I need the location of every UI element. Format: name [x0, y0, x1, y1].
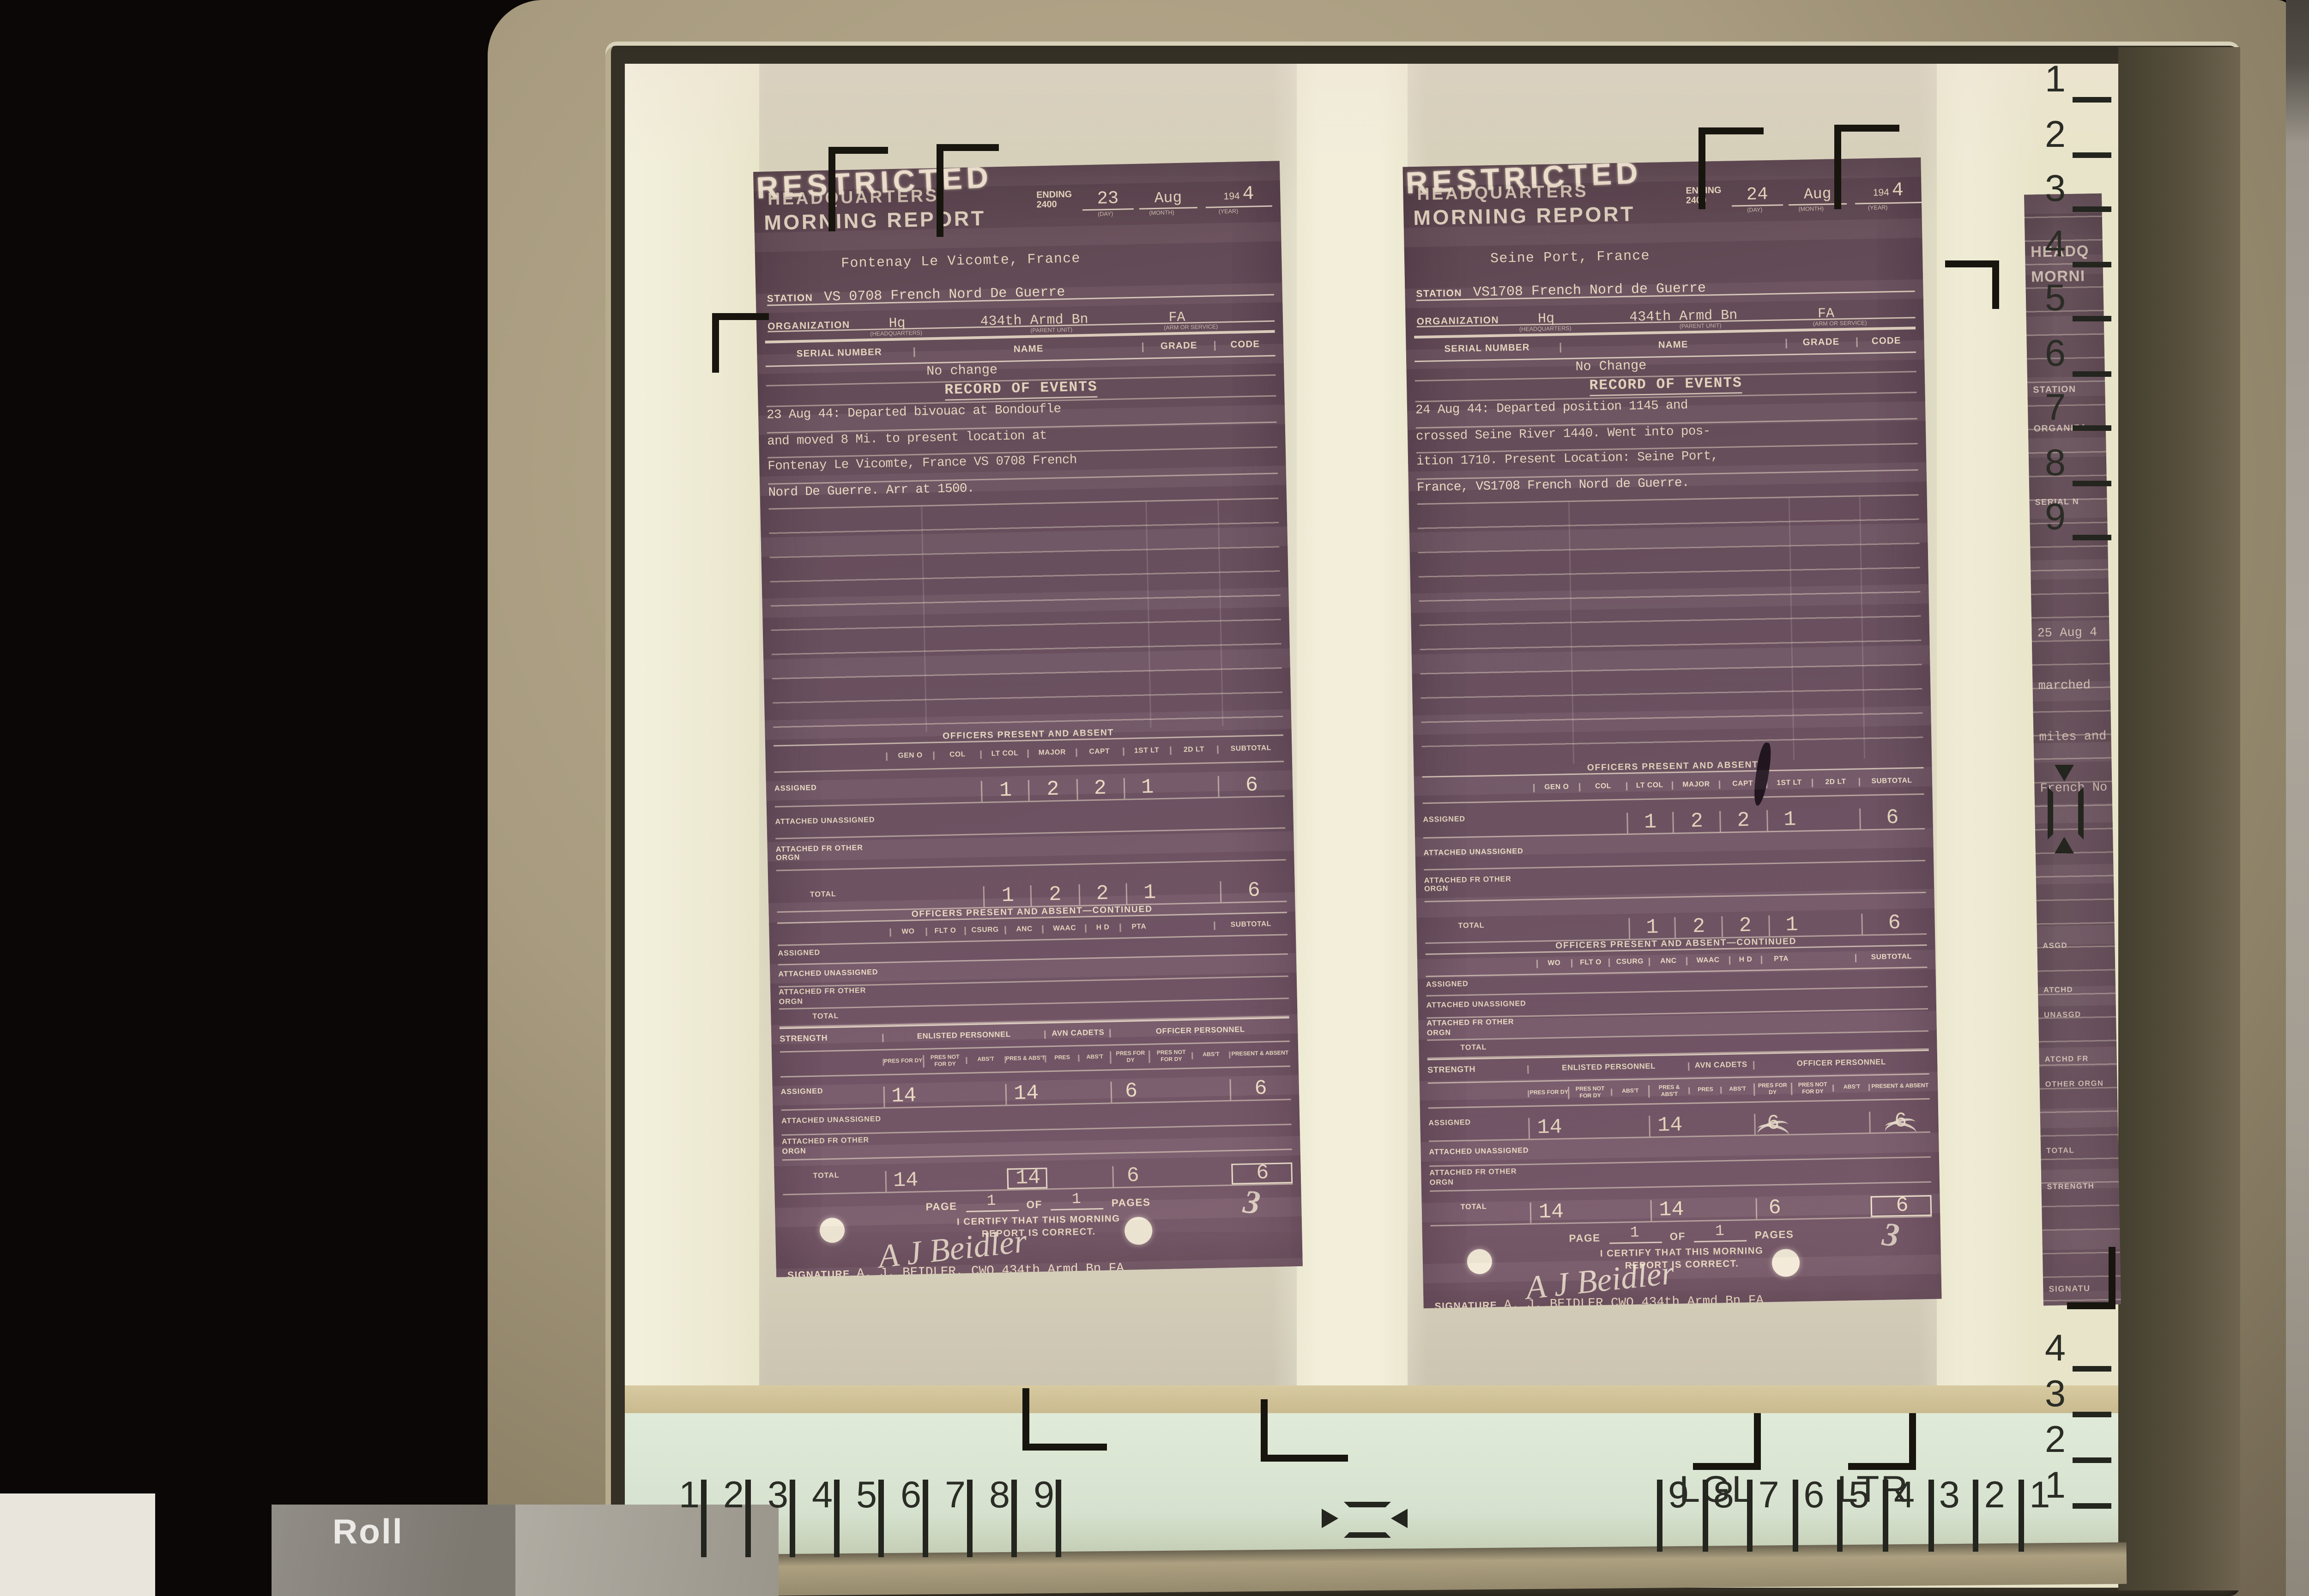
officers-column-header: CAPT	[1075, 748, 1123, 757]
strength-value-cell	[1079, 1127, 1112, 1128]
ruled-lines	[768, 499, 1283, 736]
officers-value-cell	[1581, 865, 1627, 866]
bottom-ruler-number: 5	[856, 1474, 877, 1517]
crop-mark	[828, 147, 888, 231]
bottom-ruler-number: 4	[1894, 1474, 1915, 1517]
strength-group-label: ENLISTED PERSONNEL	[882, 1030, 1045, 1042]
strength-value-cell	[1611, 1137, 1649, 1137]
strength-value-cell	[1231, 1149, 1292, 1150]
officers-cont-value-cell	[1005, 958, 1043, 959]
strength-value-cell	[1871, 1181, 1931, 1182]
bottom-ruler-number: 9	[1668, 1474, 1689, 1517]
strength-column-header: ABS'T	[1833, 1084, 1869, 1092]
ruled-lines	[1417, 496, 1923, 767]
officers-value-cell	[1767, 894, 1814, 895]
strength-group-label: AVN CADETS	[1045, 1029, 1110, 1039]
row-label: ATTACHED FR OTHER ORGN	[1427, 1018, 1537, 1038]
strength-value-cell	[1793, 1183, 1835, 1184]
ruler-tick	[701, 1480, 707, 1557]
strength-value: 6	[1125, 1080, 1138, 1104]
officers-cont-value-cell	[1007, 1021, 1045, 1022]
officers-cont-value-cell	[1688, 1034, 1730, 1035]
strength-value-cell	[1792, 1158, 1834, 1159]
officers-value-cell	[983, 864, 1030, 865]
officers-cont-column-header: WO	[889, 927, 925, 936]
partial-doc-line: STRENGTH	[2047, 1183, 2094, 1192]
officers-cont-column-header: ANC	[1005, 925, 1043, 934]
of-label: OF	[1026, 1198, 1042, 1211]
strength-value-cell: 14	[1650, 1199, 1691, 1221]
strength-value-cell: 6	[1229, 1078, 1291, 1100]
ruler-tick	[1657, 1480, 1662, 1552]
officers-cont-value-cell	[1650, 1013, 1687, 1013]
officers-cont-value-cell	[966, 1004, 1006, 1004]
partial-doc-line: marched	[2038, 678, 2091, 693]
strength-column-header: ABS'T	[966, 1057, 1004, 1064]
strength-value-cell	[1723, 1185, 1754, 1185]
strength-value: 14	[891, 1084, 917, 1108]
officers-cont-value-cell	[890, 961, 926, 962]
row-label: ATTACHED FR OTHER ORGN	[779, 987, 891, 1007]
side-ruler-number: 5	[2045, 277, 2066, 320]
row-label: ATTACHED FR OTHER ORGN	[782, 1137, 884, 1156]
officers-value-cell	[1580, 834, 1627, 834]
officers-cont-value-cell	[1119, 956, 1158, 957]
officers-value-cell: 1	[981, 780, 1028, 802]
officers-cont-value-cell	[1537, 1015, 1572, 1015]
strength-value-cell	[1193, 1100, 1229, 1101]
pages-total: 1	[1693, 1223, 1747, 1242]
officers-cont-value-cell	[1800, 987, 1855, 988]
strength-column-header: PRES & ABS'T	[1649, 1084, 1689, 1098]
column-header: CODE	[1214, 339, 1275, 350]
side-ruler-number: 3	[2045, 168, 2066, 211]
strength-column-header: ABS'T	[1078, 1054, 1111, 1062]
row-label: TOTAL	[1430, 1202, 1530, 1213]
side-ruler-number: 4	[2045, 223, 2066, 266]
corner-cell	[1428, 1082, 1529, 1107]
officers-cont-value-cell	[1801, 1050, 1856, 1051]
row-label: ATTACHED UNASSIGNED	[781, 1116, 883, 1127]
officers-value-cell: 1	[1628, 917, 1675, 939]
strength-column-header: ABS'T	[1610, 1088, 1649, 1095]
officers-cont-value-cell	[966, 1022, 1007, 1022]
row-label: TOTAL	[1427, 1043, 1537, 1054]
location-line: Seine Port, France	[1490, 250, 1650, 268]
strength-value-cell	[1046, 1103, 1079, 1104]
officers-cont-value-cell	[1762, 988, 1800, 989]
strength-value-cell: 14	[1005, 1083, 1046, 1105]
row-label: ATTACHED FR OTHER ORGN	[1424, 875, 1535, 895]
officers-value-cell	[1674, 864, 1720, 864]
strength-value-cell	[1570, 1187, 1612, 1188]
strength-column-header: PRES NOT FOR DY	[1149, 1049, 1192, 1064]
officers-value-cell	[1029, 832, 1076, 833]
strength-value-cell	[925, 1190, 968, 1191]
strength-value-cell	[1112, 1152, 1151, 1153]
ruler-tick	[1838, 1480, 1843, 1552]
row-label: ASSIGNED	[1428, 1118, 1529, 1129]
officers-cont-column-header: FLT O	[925, 926, 964, 936]
partial-doc-line: OTHER ORGN	[2045, 1080, 2104, 1089]
ending-label-line1: ENDING	[1036, 190, 1082, 201]
column-header: SERIAL NUMBER	[765, 347, 913, 360]
row-label: ATTACHED FR OTHER ORGN	[1429, 1168, 1530, 1187]
officers-cont-column-header	[1158, 925, 1214, 926]
officers-column-header: GEN O	[886, 751, 933, 761]
strength-value-cell	[1835, 1182, 1871, 1183]
officers-cont-value-cell	[892, 1023, 927, 1024]
strength-value-cell	[1006, 1129, 1046, 1130]
officers-value-cell: 6	[1859, 807, 1925, 829]
officers-cont-value-cell	[1610, 1035, 1650, 1036]
officers-cont-value-cell	[1536, 992, 1572, 993]
officers-cont-value-cell	[1043, 957, 1086, 958]
row-label: ATTACHED UNASSIGNED	[1424, 847, 1534, 858]
strength-value-cell	[1230, 1124, 1292, 1125]
officers-value-cell: 2	[1674, 916, 1722, 938]
officers-column-header: SUBTOTAL	[1217, 744, 1284, 754]
ruler-tick	[2073, 97, 2111, 103]
report-body: SERIAL NUMBERNAMEGRADECODENo changeRECOR…	[757, 330, 1303, 1277]
strength-value-cell	[1193, 1125, 1230, 1126]
strength-value-cell: 6	[1111, 1081, 1150, 1103]
officers-cont-value-cell	[1159, 977, 1215, 979]
column-header: CODE	[1856, 336, 1916, 346]
officers-value-cell	[1814, 935, 1861, 936]
officers-cont-value-cell	[1572, 1014, 1610, 1015]
strength-value-cell	[1722, 1160, 1754, 1160]
strength-value-cell	[1870, 1156, 1931, 1157]
officers-value-cell	[1125, 862, 1172, 863]
ruler-tick	[878, 1480, 884, 1557]
strength-value-cell	[1571, 1222, 1613, 1223]
officers-value-cell: 2	[1721, 915, 1768, 937]
strength-value-cell	[1569, 1137, 1611, 1138]
strength-column-header: PRES FOR DY	[1753, 1082, 1791, 1096]
strength-group-label: AVN CADETS	[1688, 1061, 1753, 1071]
officers-cont-value-cell	[1729, 1011, 1763, 1012]
strength-corner-label: STRENGTH	[780, 1034, 882, 1045]
strength-value-cell	[1151, 1151, 1194, 1152]
strength-value: 14	[1014, 1082, 1039, 1106]
side-ruler-number: 8	[2045, 441, 2066, 484]
officers-column-header: COL	[933, 750, 981, 760]
officers-value-cell	[1124, 830, 1171, 831]
strength-value: 6	[1768, 1197, 1781, 1220]
officers-cont-column-header: WAAC	[1042, 924, 1085, 933]
ruler-tick	[2073, 1412, 2111, 1417]
officers-value-cell	[1720, 863, 1767, 864]
strength-column-header: PRES FOR DY	[882, 1058, 923, 1065]
officers-value-cell	[1581, 897, 1628, 898]
ruler-tick	[2073, 1366, 2111, 1372]
officers-value-cell	[1674, 895, 1721, 896]
ruler-tick	[2073, 206, 2111, 212]
strength-value-cell	[1194, 1150, 1230, 1151]
ruler-tick	[1928, 1480, 1934, 1552]
officers-value-cell	[1535, 940, 1582, 941]
officers-cont-value-cell	[1158, 955, 1214, 956]
officers-value-cell	[1030, 864, 1077, 864]
side-ruler-number: 6	[2045, 332, 2066, 375]
side-ruler-number: 4	[2045, 1327, 2066, 1370]
ruler-tick	[1883, 1480, 1888, 1552]
officers-cont-value-cell	[1610, 991, 1650, 992]
strength-value-cell	[967, 1130, 1006, 1130]
ending-block: ENDING240023Aug194 4(DAY)(MONTH)(YEAR)	[1036, 183, 1272, 219]
officers-column-header: 1ST LT	[1765, 779, 1812, 788]
officers-value-cell	[1582, 939, 1629, 940]
bottom-ruler-number: 3	[768, 1474, 788, 1517]
month-sublabel: (MONTH)	[1149, 209, 1174, 216]
row-label: ASSIGNED	[774, 783, 887, 794]
strength-value-cell	[1650, 1185, 1691, 1186]
day-sublabel: (DAY)	[1098, 210, 1113, 218]
bottom-ruler-number: 2	[723, 1474, 744, 1517]
ruler-tick	[2073, 425, 2111, 431]
side-ruler-number: 2	[2045, 1419, 2066, 1462]
bottom-ruler-number: 8	[989, 1474, 1010, 1517]
strength-value: 6	[1126, 1164, 1139, 1188]
crop-mark	[712, 313, 769, 373]
officers-value-cell	[1171, 828, 1218, 829]
officers-cont-value-cell	[1121, 1018, 1160, 1019]
officers-column-header: GEN O	[1533, 783, 1579, 792]
officers-cont-value-cell	[1687, 990, 1729, 991]
strength-value-cell	[1723, 1219, 1755, 1220]
column-header: SERIAL NUMBER	[1414, 342, 1560, 355]
officers-cont-value-cell	[926, 982, 965, 983]
blank-ruled-area	[768, 499, 1283, 736]
ruler-tick	[2073, 152, 2111, 157]
officers-value-cell: 1	[1766, 809, 1813, 831]
side-ruler-number: 2	[2045, 113, 2066, 156]
officers-cont-value-cell	[1537, 1037, 1572, 1037]
officers-cont-value-cell	[1572, 992, 1609, 993]
strength-value: 14	[1659, 1198, 1684, 1222]
officers-cont-column-header: FLT O	[1571, 958, 1609, 967]
strength-value-cell	[1530, 1188, 1570, 1189]
ruler-tick	[790, 1480, 795, 1557]
officers-cont-value-cell	[965, 959, 1005, 960]
strength-value: 6	[1894, 1111, 1907, 1132]
strength-value-cell: 14	[1529, 1117, 1569, 1139]
punch-hole	[1124, 1217, 1153, 1245]
strength-value-cell	[1691, 1220, 1723, 1220]
station-value: VS1708 French Nord de Guerre	[1473, 282, 1706, 302]
strength-value-cell	[1151, 1126, 1194, 1127]
officers-value-cell: 2	[1078, 883, 1125, 905]
officers-cont-value-cell	[1006, 1003, 1044, 1004]
officers-value-cell	[935, 834, 982, 834]
officers-cont-value-cell	[1160, 1017, 1215, 1019]
officers-cont-column-header: H D	[1729, 955, 1762, 964]
year-digit: 4	[1242, 184, 1254, 206]
strength-value-cell	[924, 1106, 967, 1106]
hq-sublabel: (HEADQUARTERS)	[1519, 325, 1572, 332]
side-ruler-number: 9	[2045, 496, 2066, 539]
station-row: STATIONVS1708 French Nord de Guerre	[1416, 270, 1915, 301]
strength-column-header: PRESENT & ABSENT	[1869, 1083, 1929, 1091]
strength-value-cell	[1690, 1135, 1722, 1136]
location-line: Fontenay Le Vicomte, France	[841, 252, 1081, 272]
officers-column-header: COL	[1579, 782, 1626, 792]
bottom-ruler-number: 6	[1803, 1474, 1824, 1517]
row-label: ATTACHED FR OTHER ORGN	[776, 843, 889, 864]
strength-column-header: PRES	[1045, 1055, 1078, 1062]
bottom-ruler-number: 6	[901, 1474, 921, 1517]
station-row: STATIONVS 0708 French Nord De Guerre	[767, 273, 1274, 306]
strength-value-cell	[1047, 1153, 1080, 1154]
officers-cont-column-header: PTA	[1119, 922, 1158, 931]
officers-column-header: LT COL	[980, 750, 1028, 759]
officers-value-cell	[1172, 860, 1219, 861]
officers-cont-value-cell	[1006, 980, 1044, 981]
strength-value-cell	[1006, 1154, 1047, 1155]
ruler-tick	[745, 1480, 751, 1557]
strength-value: 14	[1539, 1200, 1564, 1224]
side-ruler-number: 3	[2045, 1373, 2066, 1416]
officers-cont-column-header	[1800, 957, 1855, 958]
station-label: STATION	[767, 294, 813, 305]
strength-value-cell: 6	[1113, 1166, 1152, 1187]
officers-value-cell	[1813, 829, 1859, 830]
unit-sublabel: (PARENT UNIT)	[1680, 322, 1722, 330]
of-label: OF	[1669, 1230, 1686, 1243]
officers-value-cell: 6	[1220, 880, 1287, 902]
corner-cell	[774, 744, 886, 771]
corner-cell	[1422, 776, 1533, 803]
officers-cont-column-header: SUBTOTAL	[1213, 919, 1287, 929]
bottom-ruler-number: 1	[679, 1474, 700, 1517]
officers-value-cell	[889, 908, 936, 909]
officers-cont-value-cell	[1087, 979, 1120, 980]
side-ruler-number: 1	[2045, 1464, 2066, 1507]
ruler-tick	[1056, 1480, 1061, 1557]
strength-value: 14	[1015, 1167, 1041, 1191]
strength-column-header: PRES FOR DY	[1110, 1050, 1149, 1064]
row-label: TOTAL	[779, 1011, 891, 1022]
officers-value-cell: 2	[1673, 811, 1720, 833]
strength-value-cell	[884, 1156, 925, 1157]
strength-value-cell	[1836, 1217, 1872, 1217]
strength-value-cell	[967, 1105, 1005, 1106]
officers-cont-value-cell	[1045, 1020, 1088, 1021]
strength-value-cell	[1834, 1157, 1870, 1158]
machine-lower-panel	[515, 1505, 779, 1596]
ending-month: Aug	[1139, 190, 1198, 210]
strength-group-label: OFFICER PERSONNEL	[1753, 1058, 1929, 1070]
pages-total: 1	[1050, 1191, 1103, 1210]
strength-value-cell	[1834, 1132, 1870, 1133]
pages-label: PAGES	[1112, 1196, 1151, 1209]
strength-group-label: ENLISTED PERSONNEL	[1528, 1062, 1688, 1073]
bottom-ruler-number: 4	[812, 1474, 833, 1517]
punch-hole	[1772, 1249, 1800, 1277]
strength-value-cell	[968, 1155, 1007, 1155]
officers-cont-value-cell	[1763, 1010, 1801, 1011]
strength-group-label: OFFICER PERSONNEL	[1110, 1025, 1289, 1037]
year-sublabel: (YEAR)	[1219, 207, 1239, 215]
row-label: ATTACHED UNASSIGNED	[778, 969, 890, 980]
officers-cont-value-cell	[1651, 1052, 1688, 1053]
ruler-tick	[2018, 1480, 2024, 1552]
officers-cont-column-header: PTA	[1761, 955, 1800, 964]
strength-value: 14	[893, 1169, 919, 1193]
officers-cont-column-header: CSURG	[964, 925, 1005, 935]
strength-value-cell	[883, 1131, 924, 1132]
officers-value-cell	[1814, 893, 1861, 894]
strength-column-header: ABS'T	[1721, 1086, 1753, 1094]
station-label: STATION	[1416, 289, 1462, 300]
strength-value-cell	[1691, 1185, 1723, 1185]
ruler-tick	[967, 1480, 973, 1557]
column-header: NAME	[913, 342, 1142, 356]
ruler-tick	[2073, 316, 2111, 321]
officers-cont-value-cell	[1688, 1052, 1730, 1053]
record-title-text: RECORD OF EVENTS	[944, 380, 1098, 401]
strength-value-cell	[925, 1155, 968, 1156]
officers-value-cell: 6	[1217, 774, 1284, 797]
officers-value-cell: 1	[1125, 883, 1173, 904]
blank-ruled-area	[1417, 496, 1923, 767]
officers-column-header: MAJOR	[1672, 780, 1719, 790]
officers-cont-column-header: WAAC	[1686, 955, 1729, 965]
strength-value-cell: 6	[1871, 1195, 1932, 1217]
officers-cont-value-cell	[926, 960, 965, 961]
strength-value-cell	[1792, 1133, 1834, 1134]
bottom-ruler-number: 7	[1759, 1474, 1779, 1517]
officers-cont-column-header: ANC	[1649, 956, 1686, 965]
officers-value-cell	[887, 803, 934, 804]
strength-column-header: PRES	[1689, 1087, 1721, 1094]
officers-value-cell	[1219, 859, 1286, 860]
officers-value-cell	[1860, 860, 1925, 861]
strength-value: 6	[1254, 1077, 1267, 1101]
strength-value-cell	[1081, 1187, 1113, 1187]
ruler-tick	[834, 1480, 840, 1557]
strength-value-cell	[1570, 1162, 1612, 1163]
crop-mark	[1022, 1388, 1107, 1451]
officers-cont-value-cell	[1611, 1053, 1651, 1054]
report-body: SERIAL NUMBERNAMEGRADECODENo ChangeRECOR…	[1406, 326, 1941, 1308]
vertical-centering-icon	[2048, 765, 2084, 870]
officers-cont-column-header: WO	[1536, 959, 1571, 967]
crop-mark	[1261, 1399, 1348, 1462]
ending-year: 194 4	[1205, 183, 1272, 208]
officers-value-cell	[1171, 797, 1218, 798]
officers-value-cell	[1628, 896, 1674, 897]
ending-day: 23	[1082, 187, 1133, 211]
arm-sublabel: (ARM OR SERVICE)	[1164, 323, 1218, 331]
officers-value-cell	[1860, 892, 1926, 893]
row-label: ATTACHED UNASSIGNED	[1429, 1148, 1529, 1158]
crop-mark	[2067, 1247, 2116, 1309]
crop-mark	[1834, 125, 1899, 209]
officers-value-cell: 1	[1626, 812, 1673, 834]
officers-cont-value-cell	[1087, 1001, 1121, 1002]
officers-value-cell	[1173, 902, 1220, 903]
strength-column-header: PRES NOT FOR DY	[923, 1054, 966, 1068]
ruler-tick	[923, 1480, 928, 1557]
ruler-tick	[2073, 1457, 2111, 1463]
morning-report-right: HEADQUARTERSRESTRICTEDMORNING REPORTENDI…	[1402, 157, 1941, 1308]
row-label: TOTAL	[1425, 921, 1535, 932]
officers-column-header: 1ST LT	[1122, 747, 1170, 756]
officers-cont-value-cell	[1763, 1033, 1801, 1034]
row-label: TOTAL	[777, 890, 889, 901]
